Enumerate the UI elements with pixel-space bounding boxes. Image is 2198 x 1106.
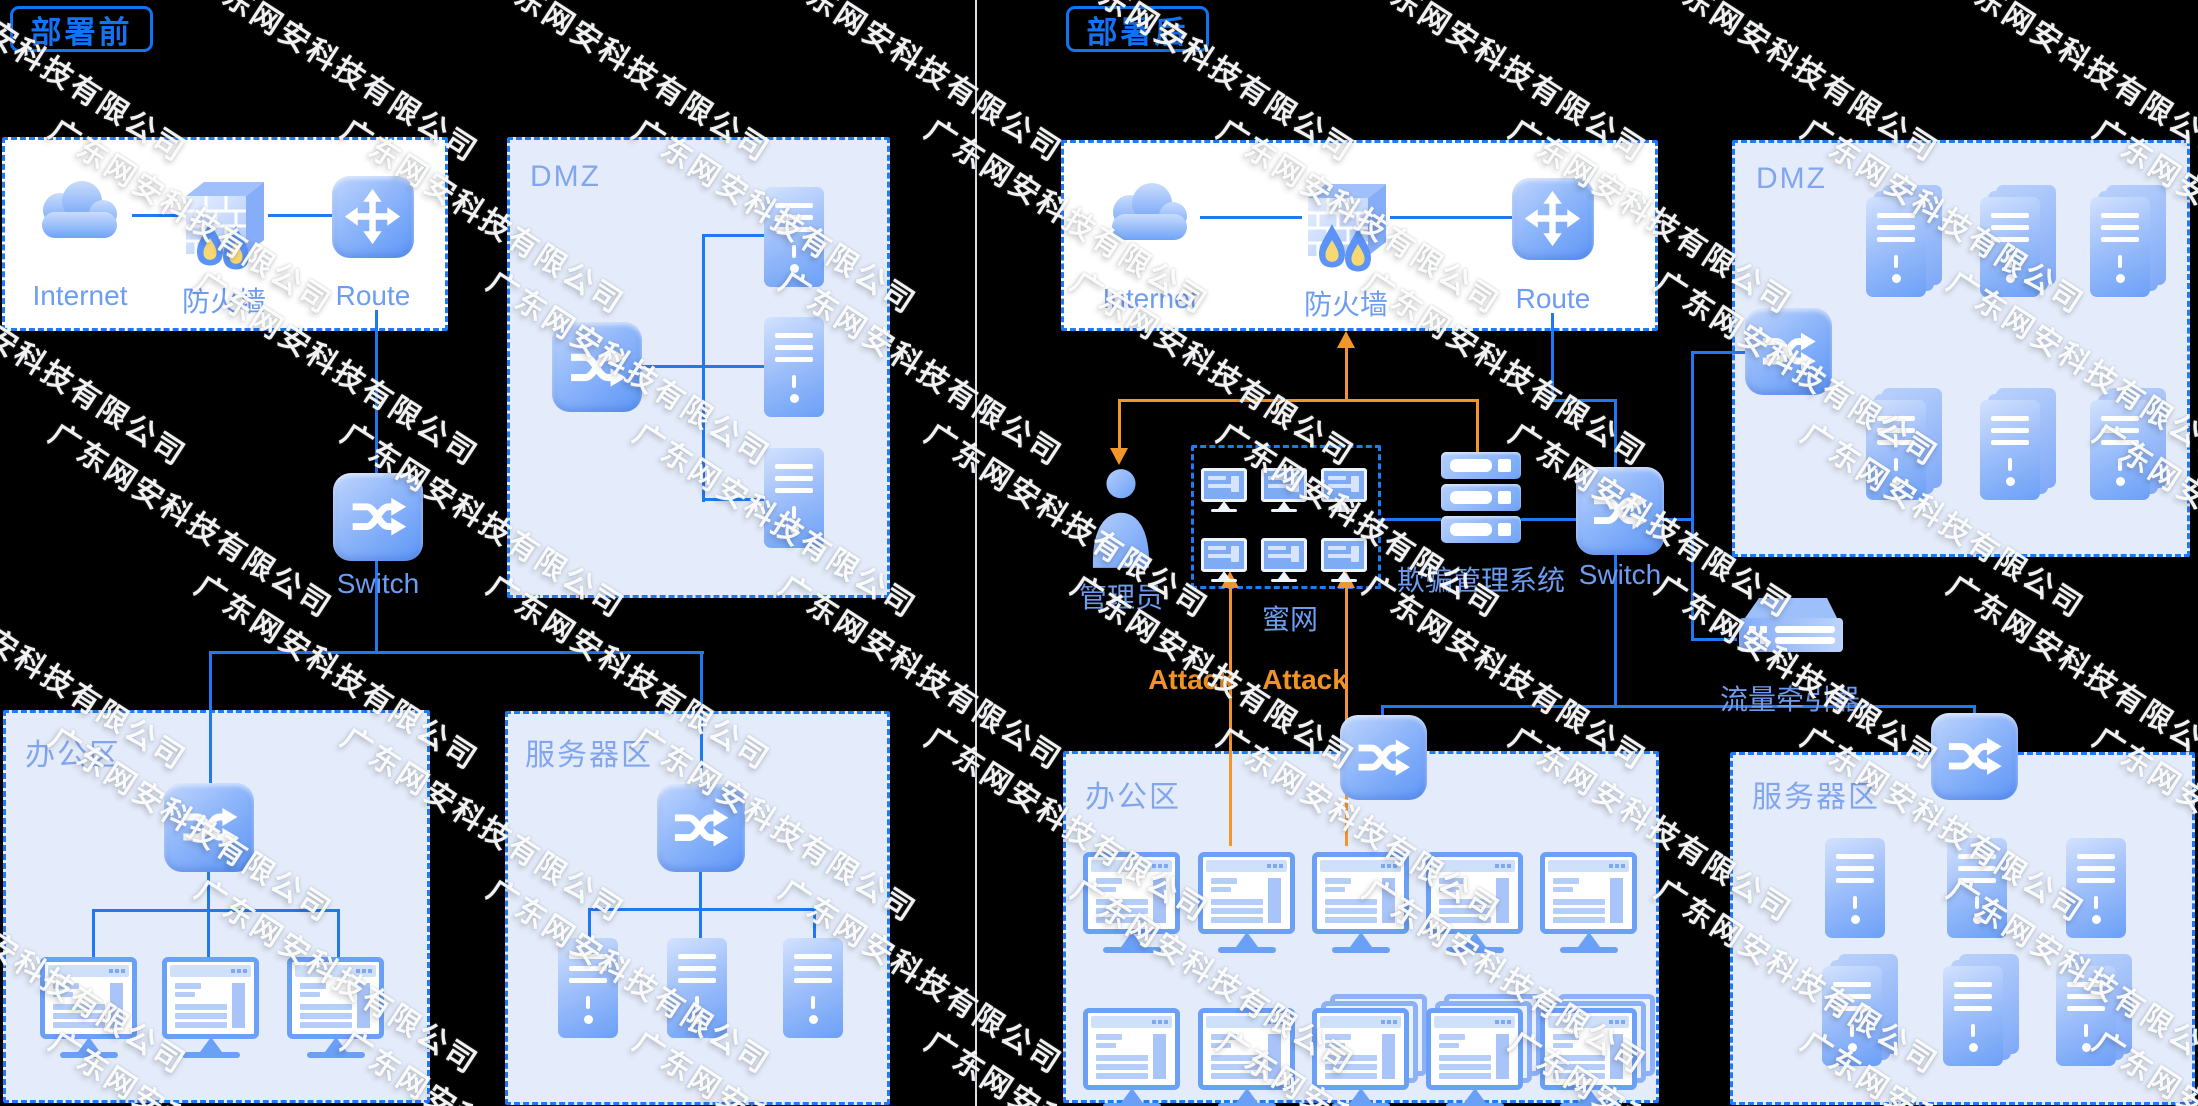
connector: [268, 214, 332, 217]
attack-line: [1229, 588, 1232, 846]
honeypot-monitor-icon: [1201, 468, 1247, 514]
office-area-label: 办公区: [25, 730, 121, 774]
connector: [699, 872, 702, 909]
office-area-label: 办公区: [1085, 772, 1181, 816]
firewall-icon: [180, 166, 268, 276]
monitor-icon: [1312, 852, 1409, 960]
route-label: Route: [336, 280, 411, 312]
cloud-icon: [1100, 178, 1200, 248]
connector: [588, 908, 816, 911]
firewall-icon: [1302, 168, 1390, 278]
switch-label: Switch: [337, 568, 419, 600]
connector: [1691, 638, 1737, 641]
server-stack-icon: [2090, 197, 2150, 297]
connector: [1521, 518, 1578, 521]
connector: [588, 908, 591, 939]
traffic-diverter-icon: [1735, 590, 1847, 666]
monitor-icon: [1540, 852, 1637, 960]
connector: [92, 909, 340, 912]
attack-path: [1345, 348, 1348, 401]
connector: [132, 214, 180, 217]
connector: [1551, 313, 1554, 401]
connector: [1551, 399, 1617, 402]
attack-label: Attack: [1262, 664, 1348, 696]
section-divider: [975, 0, 977, 1106]
connector: [207, 872, 210, 910]
admin-label: 管理员: [1079, 576, 1163, 616]
monitor-icon: [1426, 852, 1523, 960]
honeypot-monitor-icon: [1201, 538, 1247, 584]
connector: [1664, 518, 1694, 521]
monitor-stack-icon: [1540, 1008, 1637, 1106]
watermark-text: 广东网安科技有限公司: [42, 410, 343, 627]
attack-path: [1476, 399, 1479, 453]
connector: [813, 908, 816, 939]
connector: [1200, 216, 1302, 219]
connector: [209, 651, 212, 785]
route-icon: [1512, 178, 1594, 260]
monitor-stack-icon: [1312, 1008, 1409, 1106]
server-icon: [1947, 838, 2007, 938]
switch-icon: [164, 783, 254, 872]
server-icon: [764, 448, 824, 548]
connector: [337, 909, 340, 959]
after-deployment-badge: 部署后: [1066, 6, 1209, 52]
connector: [699, 908, 702, 939]
server-stack-icon: [1980, 197, 2040, 297]
server-icon: [558, 938, 618, 1038]
server-stack-icon: [1943, 966, 2003, 1066]
switch-icon: [333, 473, 423, 561]
switch-icon: [657, 784, 745, 872]
honeypot-monitor-icon: [1261, 468, 1307, 514]
monitor-icon: [1083, 852, 1180, 960]
cloud-icon: [30, 176, 130, 246]
connector: [375, 310, 378, 473]
connector: [1381, 705, 1976, 708]
server-icon: [764, 187, 824, 287]
server-icon: [667, 938, 727, 1038]
before-deployment-badge: 部署前: [10, 6, 153, 52]
connector: [1614, 399, 1617, 469]
server-stack-icon: [2090, 400, 2150, 500]
dmz-label: DMZ: [530, 160, 601, 194]
internet-label: Internet: [33, 280, 128, 312]
route-icon: [332, 176, 414, 258]
connector: [1381, 518, 1441, 521]
server-icon: [1825, 838, 1885, 938]
firewall-label: 防火墙: [1304, 283, 1388, 323]
server-stack-icon: [1866, 400, 1926, 500]
server-icon: [764, 317, 824, 417]
internet-label: Internet: [1103, 283, 1198, 315]
monitor-icon: [1198, 1008, 1295, 1106]
watermark-text: 广东网安科技有限公司: [918, 410, 1219, 627]
admin-person-icon: [1088, 466, 1154, 570]
honeypot-monitor-icon: [1321, 468, 1367, 514]
switch-icon: [1931, 713, 2018, 800]
connector: [92, 909, 95, 959]
server-icon: [783, 938, 843, 1038]
server-stack-icon: [2056, 966, 2116, 1066]
attack-path: [1118, 399, 1478, 402]
switch-label: Switch: [1579, 559, 1661, 591]
connector: [209, 651, 704, 654]
honeypot-monitor-icon: [1261, 538, 1307, 584]
deception-system-label: 欺骗管理系统: [1397, 559, 1565, 599]
badge-text: 部署前: [31, 7, 133, 52]
monitor-icon: [40, 957, 137, 1065]
connector: [1691, 351, 1694, 641]
firewall-label: 防火墙: [182, 280, 266, 320]
arrow-up-icon: [1337, 331, 1355, 348]
switch-icon: [1340, 715, 1427, 800]
server-area-label: 服务器区: [1752, 772, 1880, 816]
monitor-icon: [1198, 852, 1295, 960]
connector: [1390, 216, 1512, 219]
connector: [207, 909, 210, 959]
badge-text: 部署后: [1087, 7, 1189, 52]
traffic-diverter-label: 流量牵引器: [1720, 678, 1860, 718]
connector: [1691, 351, 1747, 354]
connector: [704, 498, 764, 501]
switch-icon: [552, 322, 642, 412]
connector: [700, 651, 703, 785]
arrow-down-icon: [1110, 448, 1128, 465]
server-area-label: 服务器区: [525, 730, 653, 774]
monitor-icon: [287, 957, 384, 1065]
server-stack-icon: [1866, 197, 1926, 297]
honeynet-label: 蜜网: [1262, 598, 1318, 638]
monitor-stack-icon: [1426, 1008, 1523, 1106]
attack-path: [1118, 399, 1121, 449]
network-deployment-diagram: 部署前 部署后 Internet 防火墙 Route DMZ Switch 办公…: [0, 0, 2198, 1106]
monitor-icon: [1083, 1008, 1180, 1106]
server-icon: [2066, 838, 2126, 938]
switch-icon: [1576, 467, 1664, 555]
connector: [704, 234, 764, 237]
attack-label: Attack: [1148, 664, 1234, 696]
server-stack-icon: [1822, 966, 1882, 1066]
switch-icon: [1745, 308, 1832, 395]
monitor-icon: [162, 957, 259, 1065]
honeypot-monitor-icon: [1321, 538, 1367, 584]
dmz-label: DMZ: [1756, 162, 1827, 196]
server-stack-icon: [1980, 400, 2040, 500]
deception-system-rack-icon: [1441, 452, 1521, 548]
connector: [702, 234, 705, 502]
route-label: Route: [1516, 283, 1591, 315]
